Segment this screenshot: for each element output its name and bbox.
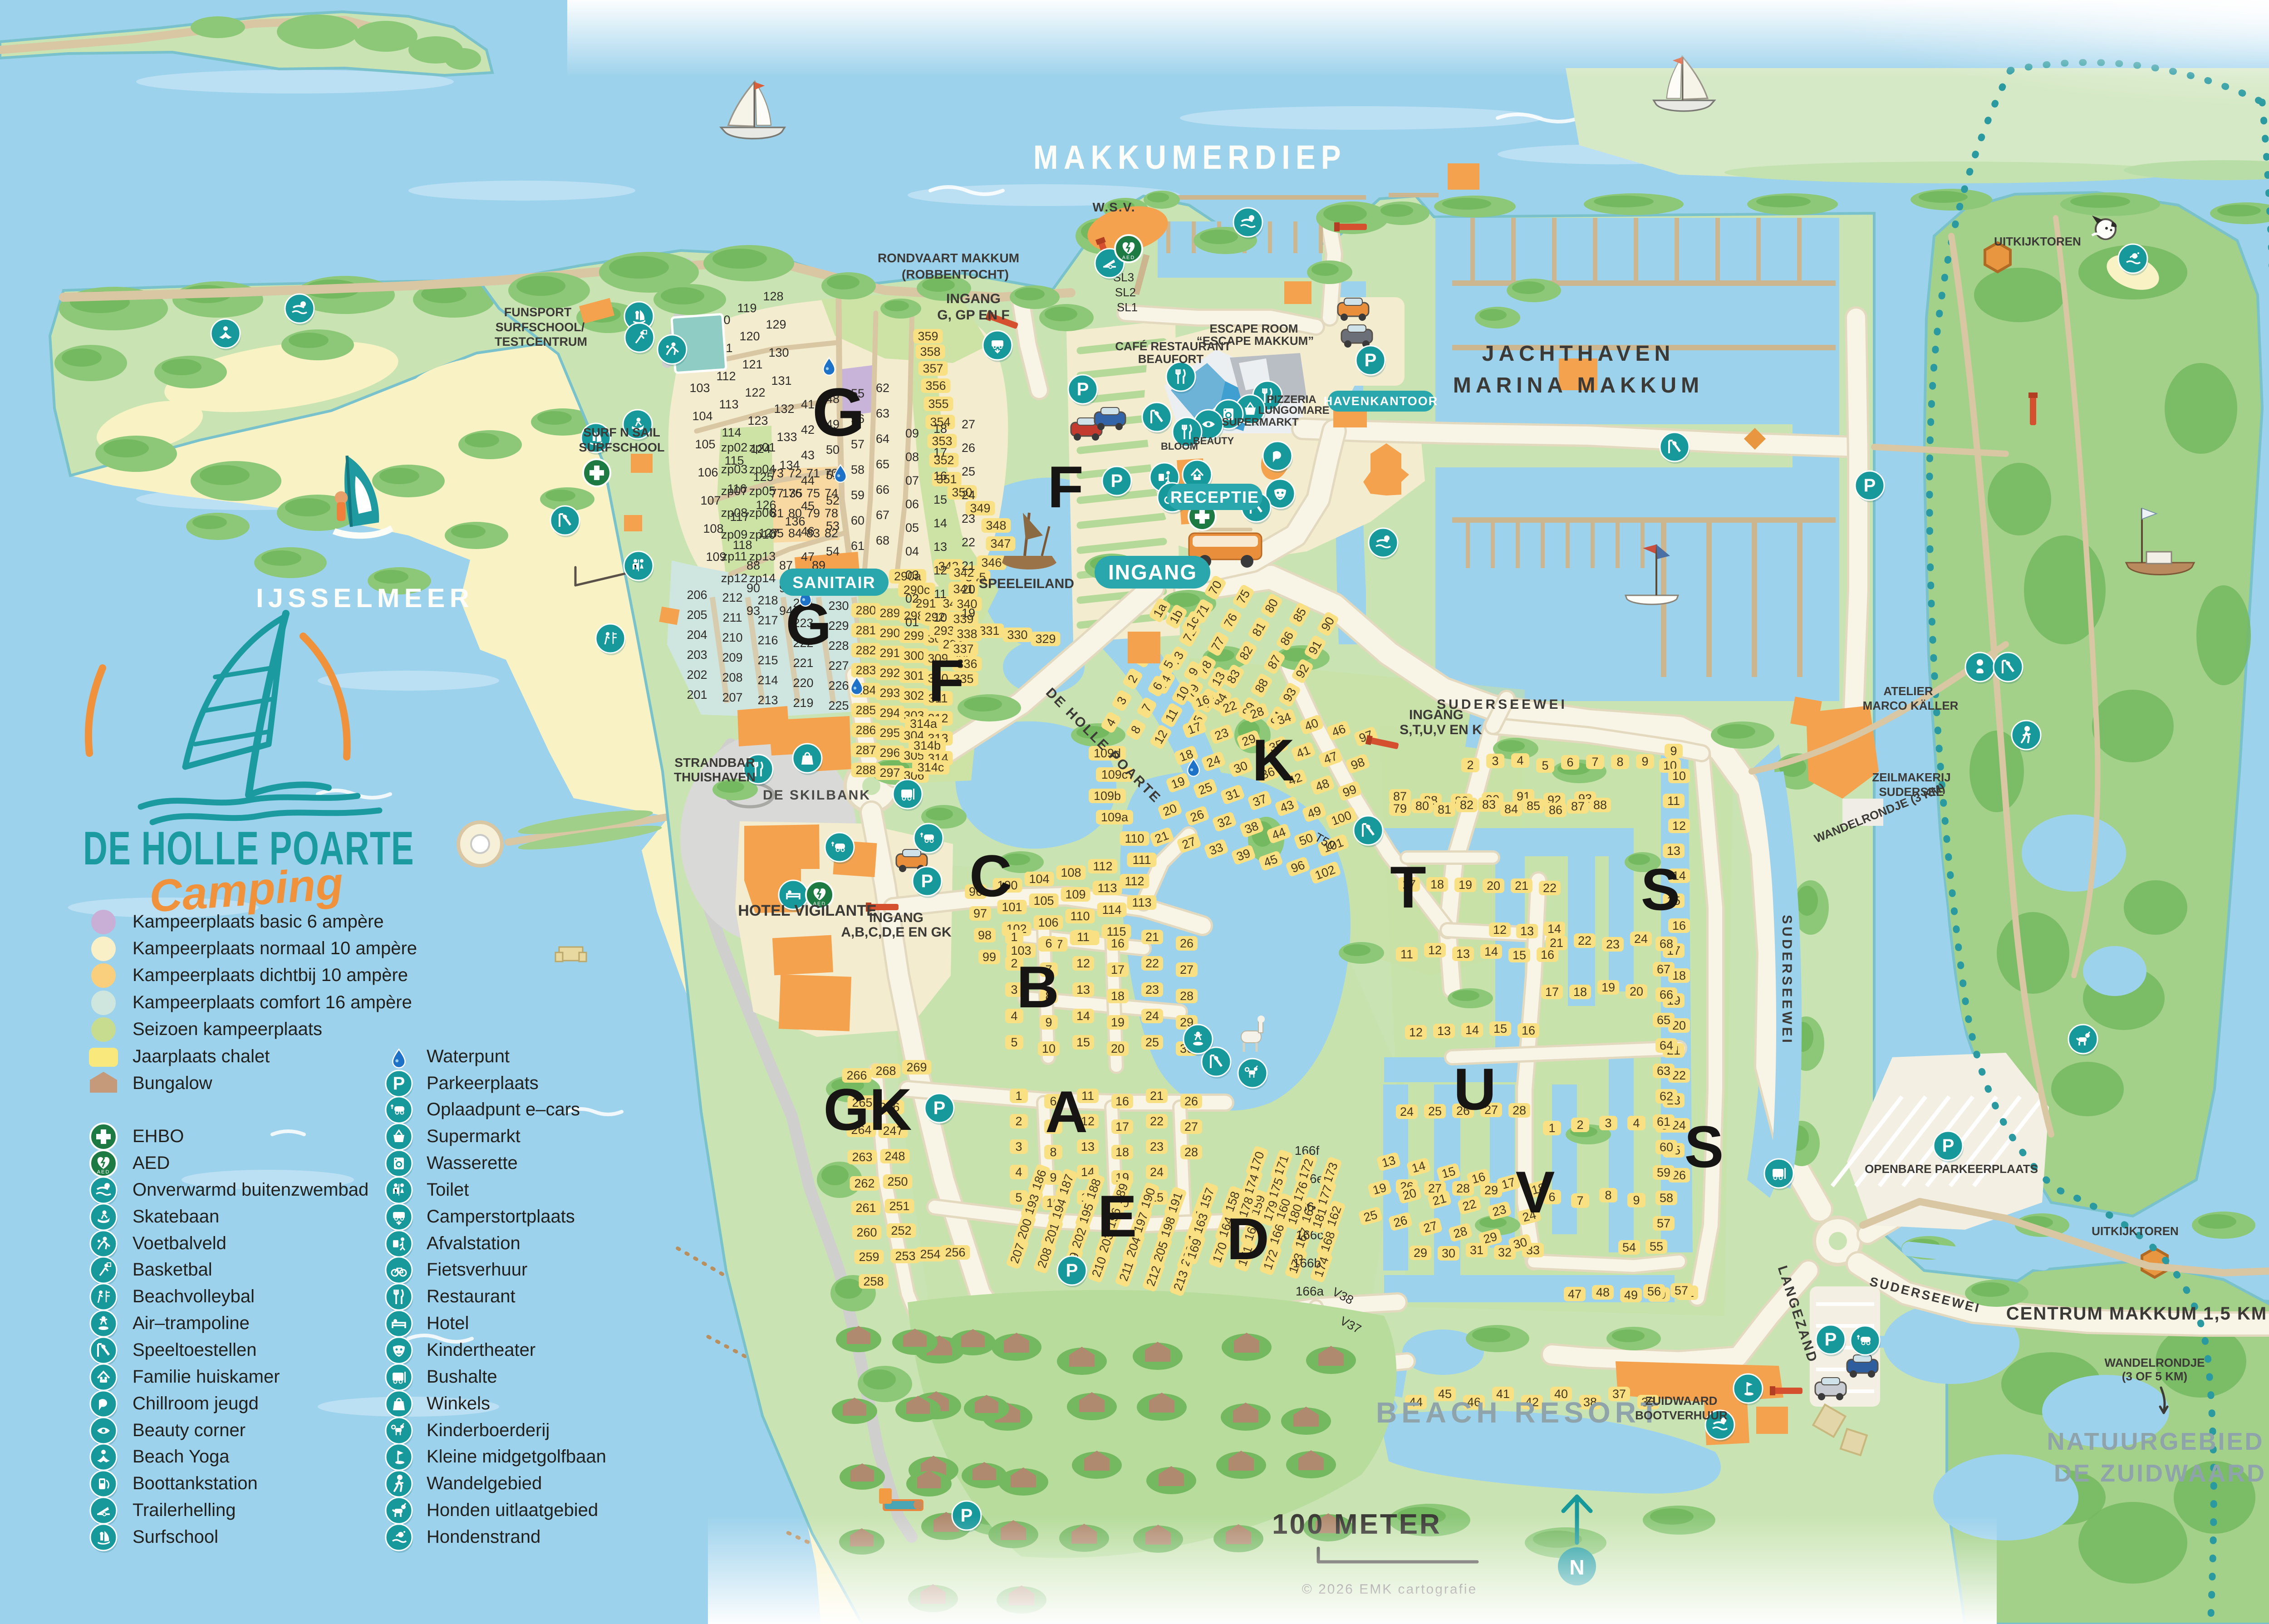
- svg-text:10: 10: [1672, 769, 1686, 783]
- svg-text:THUISHAVEN: THUISHAVEN: [674, 770, 756, 784]
- svg-text:Winkels: Winkels: [427, 1393, 490, 1413]
- svg-text:23: 23: [1606, 937, 1620, 951]
- svg-text:338: 338: [957, 627, 977, 641]
- svg-text:24: 24: [1150, 1165, 1164, 1179]
- svg-text:SUDERSEE: SUDERSEE: [1879, 785, 1944, 799]
- svg-text:16: 16: [933, 469, 947, 483]
- svg-text:251: 251: [889, 1199, 909, 1213]
- svg-text:301: 301: [904, 669, 924, 682]
- svg-text:22: 22: [1578, 934, 1591, 947]
- svg-text:113: 113: [1097, 881, 1117, 895]
- svg-text:83: 83: [1482, 798, 1496, 811]
- svg-text:20: 20: [1487, 879, 1500, 893]
- svg-text:S,T,U,V EN K: S,T,U,V EN K: [1400, 722, 1482, 737]
- svg-text:104: 104: [1029, 872, 1049, 886]
- svg-text:87: 87: [1393, 790, 1407, 803]
- svg-text:109b: 109b: [1094, 789, 1121, 803]
- svg-text:28: 28: [1456, 1182, 1470, 1195]
- svg-text:Kindertheater: Kindertheater: [427, 1340, 535, 1360]
- svg-text:281: 281: [855, 623, 876, 637]
- svg-text:29: 29: [1414, 1246, 1427, 1260]
- svg-text:114: 114: [1102, 903, 1121, 917]
- svg-text:87: 87: [1571, 800, 1585, 813]
- svg-text:T: T: [1390, 854, 1426, 920]
- svg-text:17: 17: [1111, 963, 1125, 976]
- svg-text:Skatebaan: Skatebaan: [133, 1207, 219, 1227]
- svg-text:SURF N SAIL: SURF N SAIL: [583, 426, 660, 439]
- svg-text:Wasserette: Wasserette: [427, 1153, 518, 1173]
- svg-text:13: 13: [1456, 947, 1470, 961]
- svg-text:12: 12: [1428, 943, 1442, 957]
- svg-text:85: 85: [1527, 799, 1540, 813]
- svg-text:08: 08: [905, 450, 919, 464]
- svg-text:Waterpunt: Waterpunt: [427, 1046, 510, 1066]
- svg-text:202: 202: [687, 668, 707, 682]
- svg-text:SUPERMARKT: SUPERMARKT: [1222, 416, 1299, 428]
- svg-text:Fietsverhuur: Fietsverhuur: [427, 1260, 527, 1280]
- svg-text:5: 5: [1011, 1035, 1017, 1049]
- svg-text:225: 225: [828, 699, 849, 712]
- svg-text:INGANG: INGANG: [946, 291, 1001, 306]
- svg-text:4: 4: [1633, 1116, 1640, 1130]
- svg-text:Camperstortplaats: Camperstortplaats: [427, 1207, 575, 1227]
- svg-text:219: 219: [793, 696, 813, 710]
- svg-text:63: 63: [876, 407, 889, 420]
- svg-text:13: 13: [1520, 924, 1534, 938]
- svg-text:12: 12: [1076, 957, 1090, 970]
- svg-text:20: 20: [1630, 985, 1643, 998]
- svg-text:12: 12: [1672, 819, 1686, 833]
- svg-text:81: 81: [770, 506, 784, 520]
- svg-text:Basketbal: Basketbal: [133, 1260, 212, 1280]
- svg-text:14: 14: [1484, 945, 1498, 958]
- svg-text:IJSSELMEER: IJSSELMEER: [256, 584, 474, 613]
- svg-text:261: 261: [855, 1201, 876, 1215]
- svg-text:zp02: zp02: [721, 441, 748, 454]
- svg-text:27: 27: [1180, 963, 1193, 976]
- svg-text:BEAUTY: BEAUTY: [1193, 435, 1234, 446]
- svg-text:Beauty corner: Beauty corner: [133, 1420, 246, 1440]
- svg-text:201: 201: [687, 688, 707, 702]
- svg-text:287: 287: [855, 743, 876, 757]
- svg-text:INGANG: INGANG: [1409, 707, 1464, 722]
- svg-text:22: 22: [962, 535, 975, 549]
- svg-text:10: 10: [933, 611, 947, 624]
- svg-text:Oplaadpunt e–cars: Oplaadpunt e–cars: [427, 1099, 580, 1119]
- svg-text:P: P: [1111, 471, 1123, 491]
- svg-text:18: 18: [1115, 1145, 1129, 1159]
- svg-text:21: 21: [1550, 936, 1563, 950]
- svg-text:1: 1: [1011, 930, 1017, 944]
- svg-text:28: 28: [1184, 1145, 1198, 1159]
- svg-text:MAKKUMERDIEP: MAKKUMERDIEP: [1033, 138, 1346, 176]
- svg-text:59: 59: [1657, 1166, 1670, 1179]
- svg-text:55: 55: [1650, 1240, 1663, 1253]
- svg-text:211: 211: [722, 611, 742, 624]
- svg-text:292: 292: [879, 666, 900, 680]
- svg-text:D: D: [1227, 1206, 1269, 1272]
- svg-text:285: 285: [855, 703, 876, 717]
- svg-text:UITKIJKTOREN: UITKIJKTOREN: [2092, 1224, 2179, 1238]
- svg-text:205: 205: [687, 608, 707, 622]
- svg-text:RONDVAART MAKKUM: RONDVAART MAKKUM: [878, 251, 1019, 265]
- svg-text:Hondenstrand: Hondenstrand: [427, 1527, 540, 1547]
- svg-text:10: 10: [1042, 1042, 1056, 1055]
- svg-text:17: 17: [933, 446, 947, 459]
- svg-text:226: 226: [828, 679, 849, 692]
- svg-text:15: 15: [1493, 1022, 1507, 1035]
- svg-text:355: 355: [928, 397, 948, 411]
- svg-text:331: 331: [979, 624, 999, 638]
- svg-text:SURFSCHOOL: SURFSCHOOL: [579, 441, 665, 454]
- svg-text:11: 11: [1667, 794, 1680, 808]
- svg-text:221: 221: [793, 656, 813, 670]
- svg-text:263: 263: [852, 1150, 872, 1164]
- svg-text:67: 67: [876, 508, 889, 522]
- svg-text:30: 30: [1442, 1246, 1455, 1260]
- svg-text:283: 283: [855, 663, 876, 677]
- svg-text:105: 105: [1033, 894, 1054, 908]
- svg-text:ATELIER: ATELIER: [1883, 684, 1933, 698]
- svg-text:297: 297: [879, 766, 900, 780]
- svg-text:INGANG: INGANG: [1108, 560, 1197, 584]
- svg-text:27: 27: [1184, 1120, 1198, 1133]
- svg-text:314a: 314a: [910, 717, 938, 731]
- svg-text:54: 54: [826, 545, 840, 558]
- svg-text:B: B: [1017, 954, 1059, 1020]
- svg-text:F: F: [1047, 454, 1083, 520]
- svg-text:P: P: [1077, 379, 1089, 399]
- svg-text:PIZZERIA: PIZZERIA: [1267, 393, 1316, 406]
- svg-text:Chillroom jeugd: Chillroom jeugd: [133, 1393, 259, 1413]
- svg-text:302: 302: [904, 689, 924, 702]
- svg-text:8: 8: [1605, 1188, 1611, 1202]
- svg-text:28: 28: [1180, 989, 1193, 1003]
- svg-text:(3 OF 5 KM): (3 OF 5 KM): [2122, 1369, 2187, 1383]
- svg-text:11: 11: [934, 587, 947, 601]
- svg-text:132: 132: [774, 402, 794, 416]
- svg-text:Beachvolleybal: Beachvolleybal: [133, 1286, 255, 1306]
- svg-text:4: 4: [1517, 754, 1523, 767]
- svg-text:73: 73: [770, 466, 784, 480]
- svg-text:P: P: [1825, 1330, 1837, 1349]
- svg-text:9: 9: [1633, 1193, 1640, 1207]
- svg-text:260: 260: [856, 1226, 877, 1239]
- svg-text:26: 26: [1184, 1094, 1198, 1108]
- svg-text:122: 122: [745, 386, 765, 399]
- svg-text:203: 203: [687, 648, 707, 662]
- svg-text:zp12: zp12: [721, 571, 748, 585]
- svg-text:P: P: [393, 1074, 405, 1094]
- svg-text:14: 14: [1547, 922, 1561, 936]
- svg-text:4: 4: [1015, 1165, 1022, 1179]
- svg-text:72: 72: [788, 466, 802, 480]
- svg-text:DE ZUIDWAARD: DE ZUIDWAARD: [2054, 1460, 2266, 1487]
- svg-text:03: 03: [905, 568, 919, 582]
- svg-text:12: 12: [1493, 923, 1507, 937]
- svg-text:253: 253: [895, 1249, 915, 1263]
- svg-text:26: 26: [962, 441, 975, 455]
- svg-text:Seizoen kampeerplaats: Seizoen kampeerplaats: [133, 1019, 322, 1039]
- svg-text:15: 15: [933, 493, 947, 506]
- svg-text:ZEILMAKERIJ: ZEILMAKERIJ: [1872, 770, 1950, 784]
- svg-text:26: 26: [1180, 937, 1193, 950]
- svg-text:256: 256: [945, 1246, 965, 1259]
- svg-text:14: 14: [1465, 1023, 1479, 1037]
- svg-text:V: V: [1516, 1159, 1555, 1225]
- svg-text:106: 106: [1038, 916, 1058, 929]
- svg-text:82: 82: [825, 526, 838, 540]
- svg-text:BOOTVERHUUR: BOOTVERHUUR: [1635, 1408, 1728, 1422]
- svg-text:114: 114: [722, 426, 741, 439]
- svg-text:62: 62: [876, 381, 889, 395]
- svg-text:58: 58: [1660, 1191, 1673, 1205]
- svg-text:11: 11: [1400, 947, 1413, 961]
- svg-text:64: 64: [1660, 1039, 1673, 1052]
- svg-text:62: 62: [1660, 1089, 1673, 1103]
- svg-text:259: 259: [859, 1250, 879, 1264]
- svg-text:5: 5: [1542, 759, 1548, 772]
- svg-text:286: 286: [855, 723, 876, 737]
- svg-text:22: 22: [1543, 881, 1557, 895]
- svg-text:104: 104: [692, 409, 712, 423]
- svg-text:29: 29: [1484, 1183, 1498, 1197]
- svg-text:19: 19: [1601, 981, 1615, 994]
- svg-text:347: 347: [990, 537, 1011, 550]
- svg-text:107: 107: [700, 494, 721, 507]
- svg-text:85: 85: [770, 526, 784, 540]
- svg-text:130: 130: [768, 346, 789, 359]
- svg-text:zp07: zp07: [721, 484, 748, 498]
- svg-text:300: 300: [904, 649, 924, 662]
- svg-text:282: 282: [855, 643, 876, 657]
- svg-text:47: 47: [1568, 1287, 1581, 1301]
- svg-text:58: 58: [851, 463, 864, 476]
- svg-text:Onverwarmd buitenzwembad: Onverwarmd buitenzwembad: [133, 1180, 368, 1200]
- svg-text:6: 6: [1567, 756, 1573, 769]
- svg-text:250: 250: [887, 1175, 908, 1188]
- svg-text:16: 16: [1522, 1024, 1535, 1037]
- svg-text:113: 113: [1132, 896, 1151, 909]
- svg-text:109: 109: [1065, 888, 1085, 901]
- svg-text:57: 57: [1657, 1217, 1670, 1230]
- svg-text:S: S: [1641, 856, 1680, 922]
- svg-text:C: C: [969, 843, 1012, 909]
- svg-text:21: 21: [1150, 1089, 1164, 1103]
- svg-text:LUNGOMARE: LUNGOMARE: [1258, 404, 1329, 417]
- svg-text:75: 75: [806, 486, 820, 500]
- svg-text:SL2: SL2: [1115, 285, 1136, 299]
- svg-text:07: 07: [905, 474, 919, 487]
- svg-text:207: 207: [722, 691, 742, 704]
- svg-text:57: 57: [1675, 1284, 1688, 1297]
- svg-text:9: 9: [1050, 1171, 1056, 1184]
- svg-text:290: 290: [879, 626, 900, 640]
- svg-text:90: 90: [747, 581, 760, 595]
- svg-text:“ESCAPE MAKKUM”: “ESCAPE MAKKUM”: [1197, 334, 1314, 348]
- svg-text:23: 23: [962, 512, 975, 525]
- svg-text:293: 293: [879, 686, 900, 700]
- svg-text:88: 88: [747, 559, 760, 572]
- svg-text:99: 99: [982, 950, 996, 964]
- svg-text:84: 84: [788, 526, 802, 540]
- svg-text:15: 15: [1076, 1035, 1090, 1049]
- svg-text:27: 27: [962, 417, 975, 431]
- svg-text:206: 206: [687, 588, 707, 602]
- svg-text:14: 14: [1076, 1009, 1090, 1023]
- svg-text:Familie huiskamer: Familie huiskamer: [133, 1367, 280, 1387]
- svg-text:zp08: zp08: [721, 506, 748, 520]
- svg-text:254: 254: [920, 1247, 940, 1261]
- svg-text:P: P: [921, 871, 933, 891]
- svg-text:103: 103: [689, 381, 710, 395]
- svg-text:20: 20: [1111, 1042, 1125, 1055]
- svg-text:105: 105: [695, 437, 715, 451]
- svg-text:258: 258: [863, 1275, 884, 1288]
- svg-text:CENTRUM MAKKUM 1,5 KM →: CENTRUM MAKKUM 1,5 KM →: [2006, 1304, 2269, 1324]
- svg-text:Afvalstation: Afvalstation: [427, 1233, 521, 1253]
- svg-text:MARINA MAKKUM: MARINA MAKKUM: [1453, 373, 1704, 397]
- svg-text:214: 214: [757, 673, 778, 687]
- svg-text:296: 296: [879, 746, 900, 760]
- svg-text:8: 8: [1050, 1145, 1056, 1159]
- svg-text:268: 268: [875, 1064, 896, 1078]
- svg-text:133: 133: [776, 430, 797, 444]
- svg-text:1: 1: [1548, 1121, 1555, 1135]
- svg-text:7: 7: [1577, 1194, 1583, 1207]
- svg-text:129: 129: [766, 318, 786, 331]
- svg-text:FUNSPORT: FUNSPORT: [504, 305, 572, 319]
- svg-text:357: 357: [923, 362, 943, 375]
- svg-text:60: 60: [1660, 1140, 1673, 1154]
- svg-text:G, GP EN F: G, GP EN F: [937, 308, 1009, 323]
- svg-text:P: P: [1942, 1136, 1955, 1156]
- svg-text:25: 25: [1428, 1104, 1442, 1118]
- svg-text:289: 289: [879, 606, 900, 620]
- svg-text:348: 348: [986, 519, 1006, 532]
- svg-text:119: 119: [737, 301, 756, 315]
- svg-text:Toilet: Toilet: [427, 1180, 469, 1200]
- svg-text:Bushalte: Bushalte: [427, 1367, 497, 1387]
- svg-text:21: 21: [1515, 879, 1528, 893]
- svg-text:32: 32: [1498, 1246, 1512, 1259]
- svg-text:79: 79: [1393, 802, 1407, 815]
- svg-text:05: 05: [905, 521, 919, 535]
- svg-text:K: K: [1252, 727, 1295, 793]
- svg-text:SL1: SL1: [1117, 300, 1138, 314]
- svg-text:291: 291: [879, 646, 900, 660]
- svg-text:DE SKILBANK: DE SKILBANK: [763, 788, 871, 803]
- svg-text:294: 294: [879, 706, 900, 720]
- svg-text:NATUURGEBIED: NATUURGEBIED: [2047, 1428, 2264, 1455]
- svg-text:299: 299: [904, 629, 924, 643]
- svg-text:E: E: [1098, 1183, 1137, 1249]
- svg-text:356: 356: [925, 379, 946, 393]
- svg-text:2: 2: [1015, 1114, 1022, 1128]
- svg-text:zp03: zp03: [721, 462, 748, 476]
- svg-text:166b: 166b: [1293, 1256, 1321, 1270]
- svg-text:61: 61: [851, 539, 864, 553]
- svg-text:217: 217: [757, 613, 778, 627]
- svg-text:120: 120: [739, 329, 760, 343]
- svg-text:220: 220: [793, 676, 813, 690]
- svg-text:209: 209: [722, 651, 742, 664]
- svg-text:Trailerhelling: Trailerhelling: [133, 1500, 236, 1520]
- svg-text:13: 13: [1076, 983, 1090, 996]
- svg-text:67: 67: [1657, 962, 1670, 976]
- svg-text:60: 60: [851, 514, 864, 527]
- svg-text:3: 3: [1492, 754, 1498, 768]
- svg-text:F: F: [928, 648, 964, 714]
- svg-text:P: P: [1864, 476, 1876, 496]
- svg-text:68: 68: [876, 534, 889, 547]
- svg-text:23: 23: [1150, 1140, 1164, 1153]
- svg-text:112: 112: [1125, 874, 1144, 888]
- svg-text:Kinderboerderij: Kinderboerderij: [427, 1420, 550, 1440]
- svg-text:213: 213: [757, 693, 778, 707]
- svg-text:314b: 314b: [913, 739, 941, 752]
- svg-text:113: 113: [719, 397, 738, 411]
- svg-text:83: 83: [806, 526, 820, 540]
- svg-text:UITKIJKTOREN: UITKIJKTOREN: [1994, 235, 2081, 248]
- svg-text:71: 71: [806, 466, 820, 480]
- svg-text:Voetbalveld: Voetbalveld: [133, 1233, 226, 1253]
- svg-text:Honden uitlaatgebied: Honden uitlaatgebied: [427, 1500, 598, 1520]
- svg-text:80: 80: [788, 506, 802, 520]
- svg-text:24: 24: [962, 488, 975, 502]
- svg-text:74: 74: [825, 486, 838, 500]
- svg-text:79: 79: [806, 506, 820, 520]
- svg-text:2: 2: [1577, 1118, 1583, 1132]
- svg-text:21: 21: [962, 559, 975, 573]
- svg-text:U: U: [1454, 1056, 1496, 1122]
- svg-text:248: 248: [884, 1149, 905, 1163]
- svg-text:212: 212: [722, 591, 742, 604]
- svg-text:ZUIDWAARD: ZUIDWAARD: [1645, 1394, 1718, 1408]
- svg-text:22: 22: [1145, 957, 1159, 970]
- svg-text:(ROBBENTOCHT): (ROBBENTOCHT): [902, 267, 1009, 281]
- svg-text:22: 22: [1150, 1114, 1164, 1128]
- svg-text:01: 01: [905, 615, 919, 629]
- svg-text:14: 14: [933, 516, 947, 530]
- svg-text:Kampeerplaats comfort 16 ampèr: Kampeerplaats comfort 16 ampère: [133, 992, 412, 1012]
- svg-text:112: 112: [716, 369, 736, 383]
- svg-text:208: 208: [722, 671, 742, 684]
- svg-text:Bungalow: Bungalow: [133, 1073, 212, 1093]
- svg-text:61: 61: [1657, 1115, 1670, 1128]
- svg-text:SPEELEILAND: SPEELEILAND: [979, 576, 1074, 591]
- svg-text:252: 252: [891, 1224, 911, 1237]
- svg-text:86: 86: [1549, 803, 1562, 817]
- svg-text:227: 227: [828, 659, 849, 672]
- svg-text:108: 108: [1061, 866, 1081, 879]
- svg-text:204: 204: [687, 628, 707, 642]
- svg-text:106: 106: [697, 466, 718, 479]
- svg-text:76: 76: [788, 486, 802, 500]
- svg-text:63: 63: [1657, 1064, 1670, 1078]
- svg-text:P: P: [1066, 1261, 1078, 1281]
- svg-text:25: 25: [962, 465, 975, 478]
- svg-text:358: 358: [920, 345, 940, 358]
- svg-text:131: 131: [771, 374, 791, 388]
- svg-text:330: 330: [1007, 628, 1027, 642]
- svg-text:295: 295: [879, 726, 900, 740]
- svg-text:18: 18: [1111, 989, 1125, 1003]
- svg-text:19: 19: [1111, 1016, 1125, 1029]
- svg-text:GK: GK: [824, 1076, 912, 1143]
- svg-text:359: 359: [918, 329, 938, 343]
- svg-text:24: 24: [1145, 1009, 1159, 1023]
